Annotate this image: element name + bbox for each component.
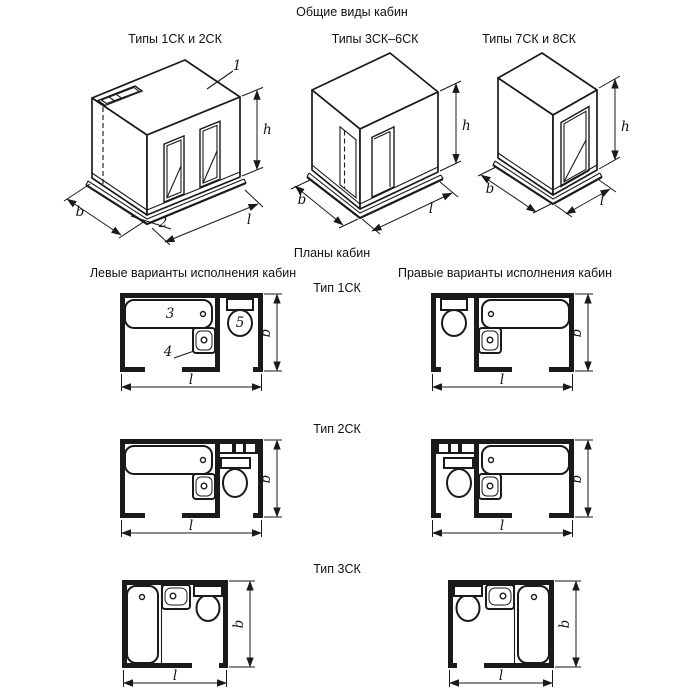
standards-figure: Общие виды кабин Типы 1СК и 2СК Типы 3СК…: [0, 0, 700, 700]
dim-b-label: b: [486, 181, 495, 197]
dim-b-label: b: [231, 620, 247, 629]
dim-b-label: b: [76, 204, 85, 220]
dim-b-label: b: [569, 329, 585, 338]
dim-l-label: l: [429, 201, 433, 217]
iso-view-3sk-6sk: h b l: [291, 53, 471, 234]
figure-canvas: Общие виды кабин Типы 1СК и 2СК Типы 3СК…: [0, 0, 700, 700]
extension-line: [440, 81, 461, 91]
dim-l-label: l: [247, 212, 251, 228]
page-title: Общие виды кабин: [296, 5, 408, 19]
type-3sk-label: Тип 3СК: [313, 562, 361, 576]
iso-view-1sk-2sk: 1 2 h b l: [64, 58, 272, 245]
dim-b-label: b: [569, 475, 585, 484]
plan-3sk-left-drawing: [122, 580, 228, 668]
right-column-header: Правые варианты исполнения кабин: [398, 266, 612, 280]
extension-line: [245, 190, 263, 207]
view1-label: Типы 1СК и 2СК: [128, 32, 222, 46]
extension-line: [242, 87, 263, 96]
extension-line: [555, 205, 572, 217]
dimension-line-l: [372, 193, 452, 231]
extension-line: [478, 167, 496, 176]
extension-line: [599, 76, 620, 88]
dim-b-label: b: [258, 329, 274, 338]
dim-l-label: l: [500, 518, 504, 534]
extension-line: [291, 180, 310, 189]
iso-view-7sk-8sk: h b l: [478, 53, 630, 217]
callout-4-leader: [174, 351, 194, 358]
dim-h-label: h: [263, 122, 272, 138]
extension-line: [440, 161, 461, 171]
plan-2sk-left: b l: [120, 439, 282, 537]
extension-line: [242, 167, 263, 176]
dim-b-label: b: [298, 192, 307, 208]
plan-2sk-left-drawing: [120, 439, 263, 518]
extension-line: [599, 157, 620, 169]
left-column-header: Левые варианты исполнения кабин: [90, 266, 296, 280]
plan-3sk-left: b l: [122, 580, 255, 687]
callout-5: 5: [236, 315, 245, 331]
dim-l-label: l: [500, 372, 504, 388]
dim-h-label: h: [621, 119, 630, 135]
dim-l-label: l: [189, 372, 193, 388]
dim-l-label: l: [600, 193, 604, 209]
dim-l-label: l: [173, 668, 177, 684]
dim-b-label: b: [258, 475, 274, 484]
extension-line: [362, 219, 380, 234]
plans-title: Планы кабин: [294, 246, 370, 260]
dim-l-label: l: [499, 668, 503, 684]
view2-label: Типы 3СК–6СК: [332, 32, 419, 46]
dim-b-label: b: [557, 620, 573, 629]
view3-label: Типы 7СК и 8СК: [482, 32, 576, 46]
plan-1sk-left-drawing: [120, 293, 263, 372]
dim-l-label: l: [189, 518, 193, 534]
type-2sk-label: Тип 2СК: [313, 422, 361, 436]
plan-1sk-right: b l: [431, 293, 593, 391]
callout-3: 3: [166, 306, 175, 322]
dim-h-label: h: [462, 118, 471, 134]
plan-2sk-right-drawing: [431, 439, 574, 518]
plan-2sk-right: b l: [431, 439, 593, 537]
plan-1sk-right-drawing: [431, 293, 574, 372]
callout-4: 4: [163, 344, 173, 360]
type-1sk-label: Тип 1СК: [313, 281, 361, 295]
extension-line: [119, 221, 145, 238]
plan-3sk-right-drawing: [448, 580, 554, 668]
callout-2: 2: [158, 215, 168, 231]
plan-3sk-right: b l: [448, 580, 581, 687]
plan-1sk-left: 3 4 5 b l: [120, 293, 282, 391]
callout-1: 1: [233, 58, 242, 74]
extension-line: [64, 184, 90, 201]
